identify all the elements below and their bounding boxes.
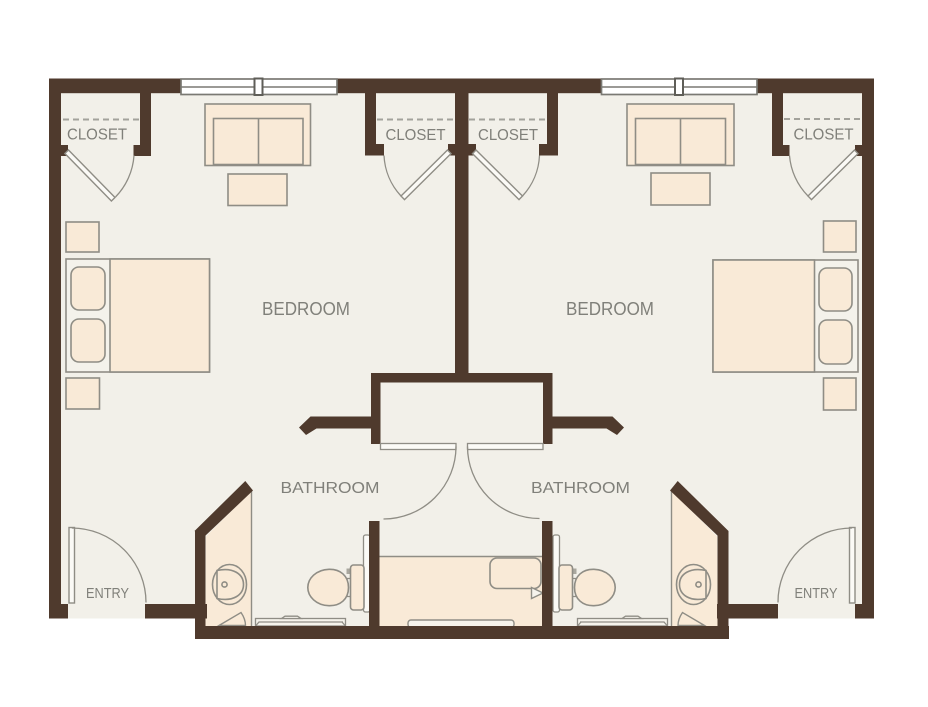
svg-text:ENTRY: ENTRY [86, 586, 129, 602]
svg-text:BATHROOM: BATHROOM [531, 480, 630, 497]
svg-text:BEDROOM: BEDROOM [262, 298, 350, 319]
svg-text:CLOSET: CLOSET [386, 127, 446, 144]
svg-text:CLOSET: CLOSET [67, 127, 127, 144]
svg-text:CLOSET: CLOSET [478, 127, 538, 144]
svg-text:BATHROOM: BATHROOM [281, 480, 380, 497]
svg-text:ENTRY: ENTRY [795, 586, 838, 602]
svg-text:CLOSET: CLOSET [794, 127, 854, 144]
svg-text:BEDROOM: BEDROOM [566, 298, 654, 319]
